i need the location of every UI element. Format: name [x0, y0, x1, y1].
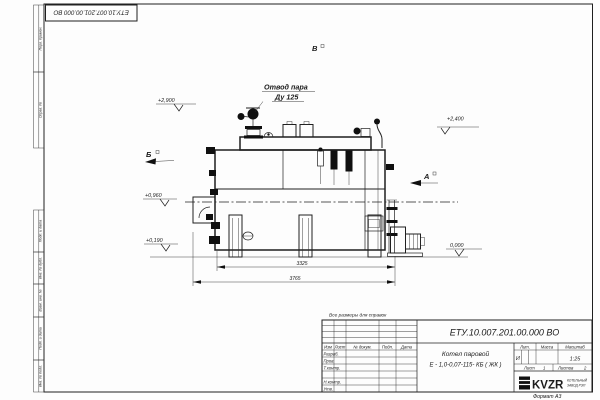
- tb-sheet-label: Лист: [523, 366, 535, 371]
- front-nozzle-stubs: [206, 147, 394, 244]
- boiler-shell: [215, 137, 385, 250]
- tb-row-tkontr: Т.контр.: [324, 366, 341, 371]
- sight-glass: [243, 232, 253, 240]
- view-label-a: А: [410, 172, 438, 186]
- margin-label-podp-data-2: Подп. и дата: [39, 327, 43, 350]
- tb-header-list: Лист: [334, 345, 346, 350]
- elevation-0190: +0,190: [144, 238, 178, 251]
- logo-caption-line1: КОТЕЛЬНЫЙ: [567, 379, 588, 383]
- logo-caption-line2: ЗАВОД РЭП: [567, 384, 586, 388]
- elevation-0960: +0,960: [143, 193, 177, 206]
- elevation-2900: +2,900: [156, 98, 196, 111]
- margin-label-inv-dubl: Инв. № дубл.: [39, 257, 43, 279]
- tb-header-podp: Подп.: [382, 345, 393, 350]
- margin-label-inv-podl: Инв. № подл.: [39, 365, 43, 387]
- svg-text:+0,960: +0,960: [145, 193, 162, 199]
- boiler-drawing-canvas: Перв. примен. Справ. № Подп. и дата Инв.…: [0, 0, 600, 400]
- dimension-overall-value: 3765: [289, 276, 300, 282]
- tb-header-masshtab: Масштаб: [565, 345, 585, 350]
- tb-header-doc: № докум.: [353, 345, 371, 350]
- margin-label-perv-primen: Перв. примен.: [39, 27, 43, 51]
- drawing-sheet: Перв. примен. Справ. № Подп. и дата Инв.…: [0, 0, 600, 400]
- view-label-v: В: [312, 44, 324, 53]
- margin-label-sprav: Справ. №: [39, 102, 43, 118]
- margin-label-vzam-inv: Взам. инв. №: [39, 289, 43, 311]
- svg-text:В: В: [312, 44, 318, 53]
- tb-row-nkontr: Н.контр.: [324, 380, 342, 385]
- steam-outlet-valve: [238, 108, 264, 139]
- burner-unit: [193, 197, 215, 223]
- view-labels: Б А В: [145, 44, 438, 186]
- tb-header-data: Дата: [400, 345, 413, 350]
- svg-text:А: А: [423, 172, 429, 181]
- tb-name-line2: Е - 1,0-0,07-115- КБ ( ЖК ): [429, 363, 501, 369]
- stamp-designation-text: ЕТУ.10.007.201.00.000 ВО: [53, 9, 128, 16]
- tb-header-lit: Лит.: [519, 345, 530, 350]
- svg-text:+2,900: +2,900: [158, 98, 175, 104]
- tb-designation: ЕТУ.10.007.201.00.000 ВО: [450, 328, 559, 338]
- steam-outlet-callout: Отвод пара Ду 125: [255, 83, 315, 113]
- elevation-2400: +2,400: [437, 117, 479, 135]
- tb-scale-value: 1:25: [570, 357, 582, 363]
- svg-text:+2,400: +2,400: [447, 117, 464, 123]
- tb-row-razrab: Разраб.: [324, 352, 339, 357]
- tb-sheet-value: 1: [543, 366, 545, 371]
- top-left-designation-stamp: ЕТУ.10.007.201.00.000 ВО: [46, 5, 138, 21]
- kvzr-logo: KVZR КОТЕЛЬНЫЙ ЗАВОД РЭП: [519, 377, 588, 392]
- margin-label-podp-data-1: Подп. и дата: [39, 220, 43, 243]
- elevation-0000: 0,000: [446, 243, 482, 256]
- svg-text:+0,190: +0,190: [146, 238, 163, 244]
- boiler-side-view: Отвод пара Ду 125: [143, 44, 482, 286]
- tb-lit-value: И: [516, 356, 520, 362]
- tb-row-prov: Пров.: [324, 359, 335, 364]
- water-level-fittings: [318, 148, 353, 186]
- drum-fittings: [264, 119, 382, 149]
- steam-outlet-label-line1: Отвод пара: [264, 83, 308, 92]
- steam-outlet-label-line2: Ду 125: [274, 93, 299, 102]
- tb-row-utv: Утв.: [324, 387, 334, 392]
- reference-note: Все размеры для справок: [329, 313, 387, 319]
- tb-sheets-value: 2: [583, 366, 587, 371]
- svg-text:Б: Б: [146, 150, 152, 159]
- dimension-inner-value: 3325: [296, 261, 307, 267]
- title-block: Все размеры для справок ЕТУ.10.007.201.0…: [322, 313, 592, 400]
- tb-header-massa: Масса: [541, 345, 554, 350]
- logo-text: KVZR: [532, 380, 564, 392]
- tb-name-line1: Котел паровой: [442, 350, 490, 358]
- blower-unit: [388, 227, 425, 257]
- frame-margin-cells: Перв. примен. Справ. № Подп. и дата Инв.…: [34, 5, 45, 392]
- tb-header-izm: Изм: [324, 345, 332, 350]
- view-label-b: Б: [145, 150, 174, 165]
- tb-sheets-label: Листов: [557, 366, 574, 371]
- svg-text:0,000: 0,000: [450, 243, 464, 249]
- format-note: Формат А3: [533, 394, 561, 400]
